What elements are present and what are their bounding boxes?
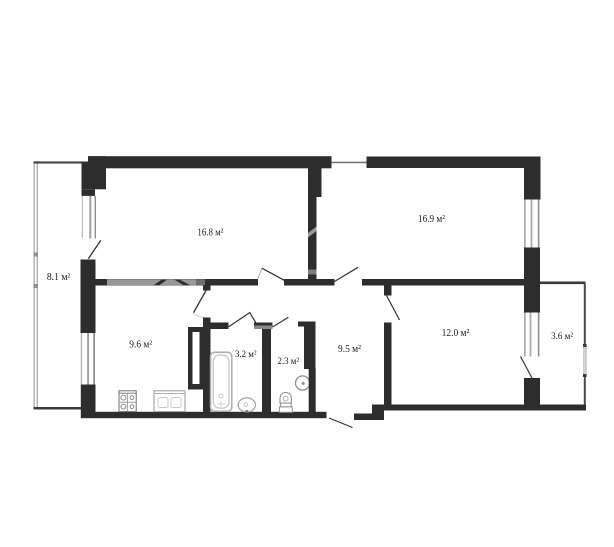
svg-text:2.3 м²: 2.3 м² [278, 357, 300, 367]
svg-text:16.9 м²: 16.9 м² [418, 213, 446, 225]
svg-text:8.1 м²: 8.1 м² [47, 272, 71, 283]
svg-text:3.2 м²: 3.2 м² [235, 350, 257, 360]
svg-text:16.8 м²: 16.8 м² [197, 227, 224, 239]
svg-text:9.6 м²: 9.6 м² [129, 339, 152, 351]
svg-text:3.6 м²: 3.6 м² [551, 332, 573, 342]
svg-text:9.5 м²: 9.5 м² [338, 343, 362, 355]
svg-text:12.0 м²: 12.0 м² [442, 327, 470, 339]
